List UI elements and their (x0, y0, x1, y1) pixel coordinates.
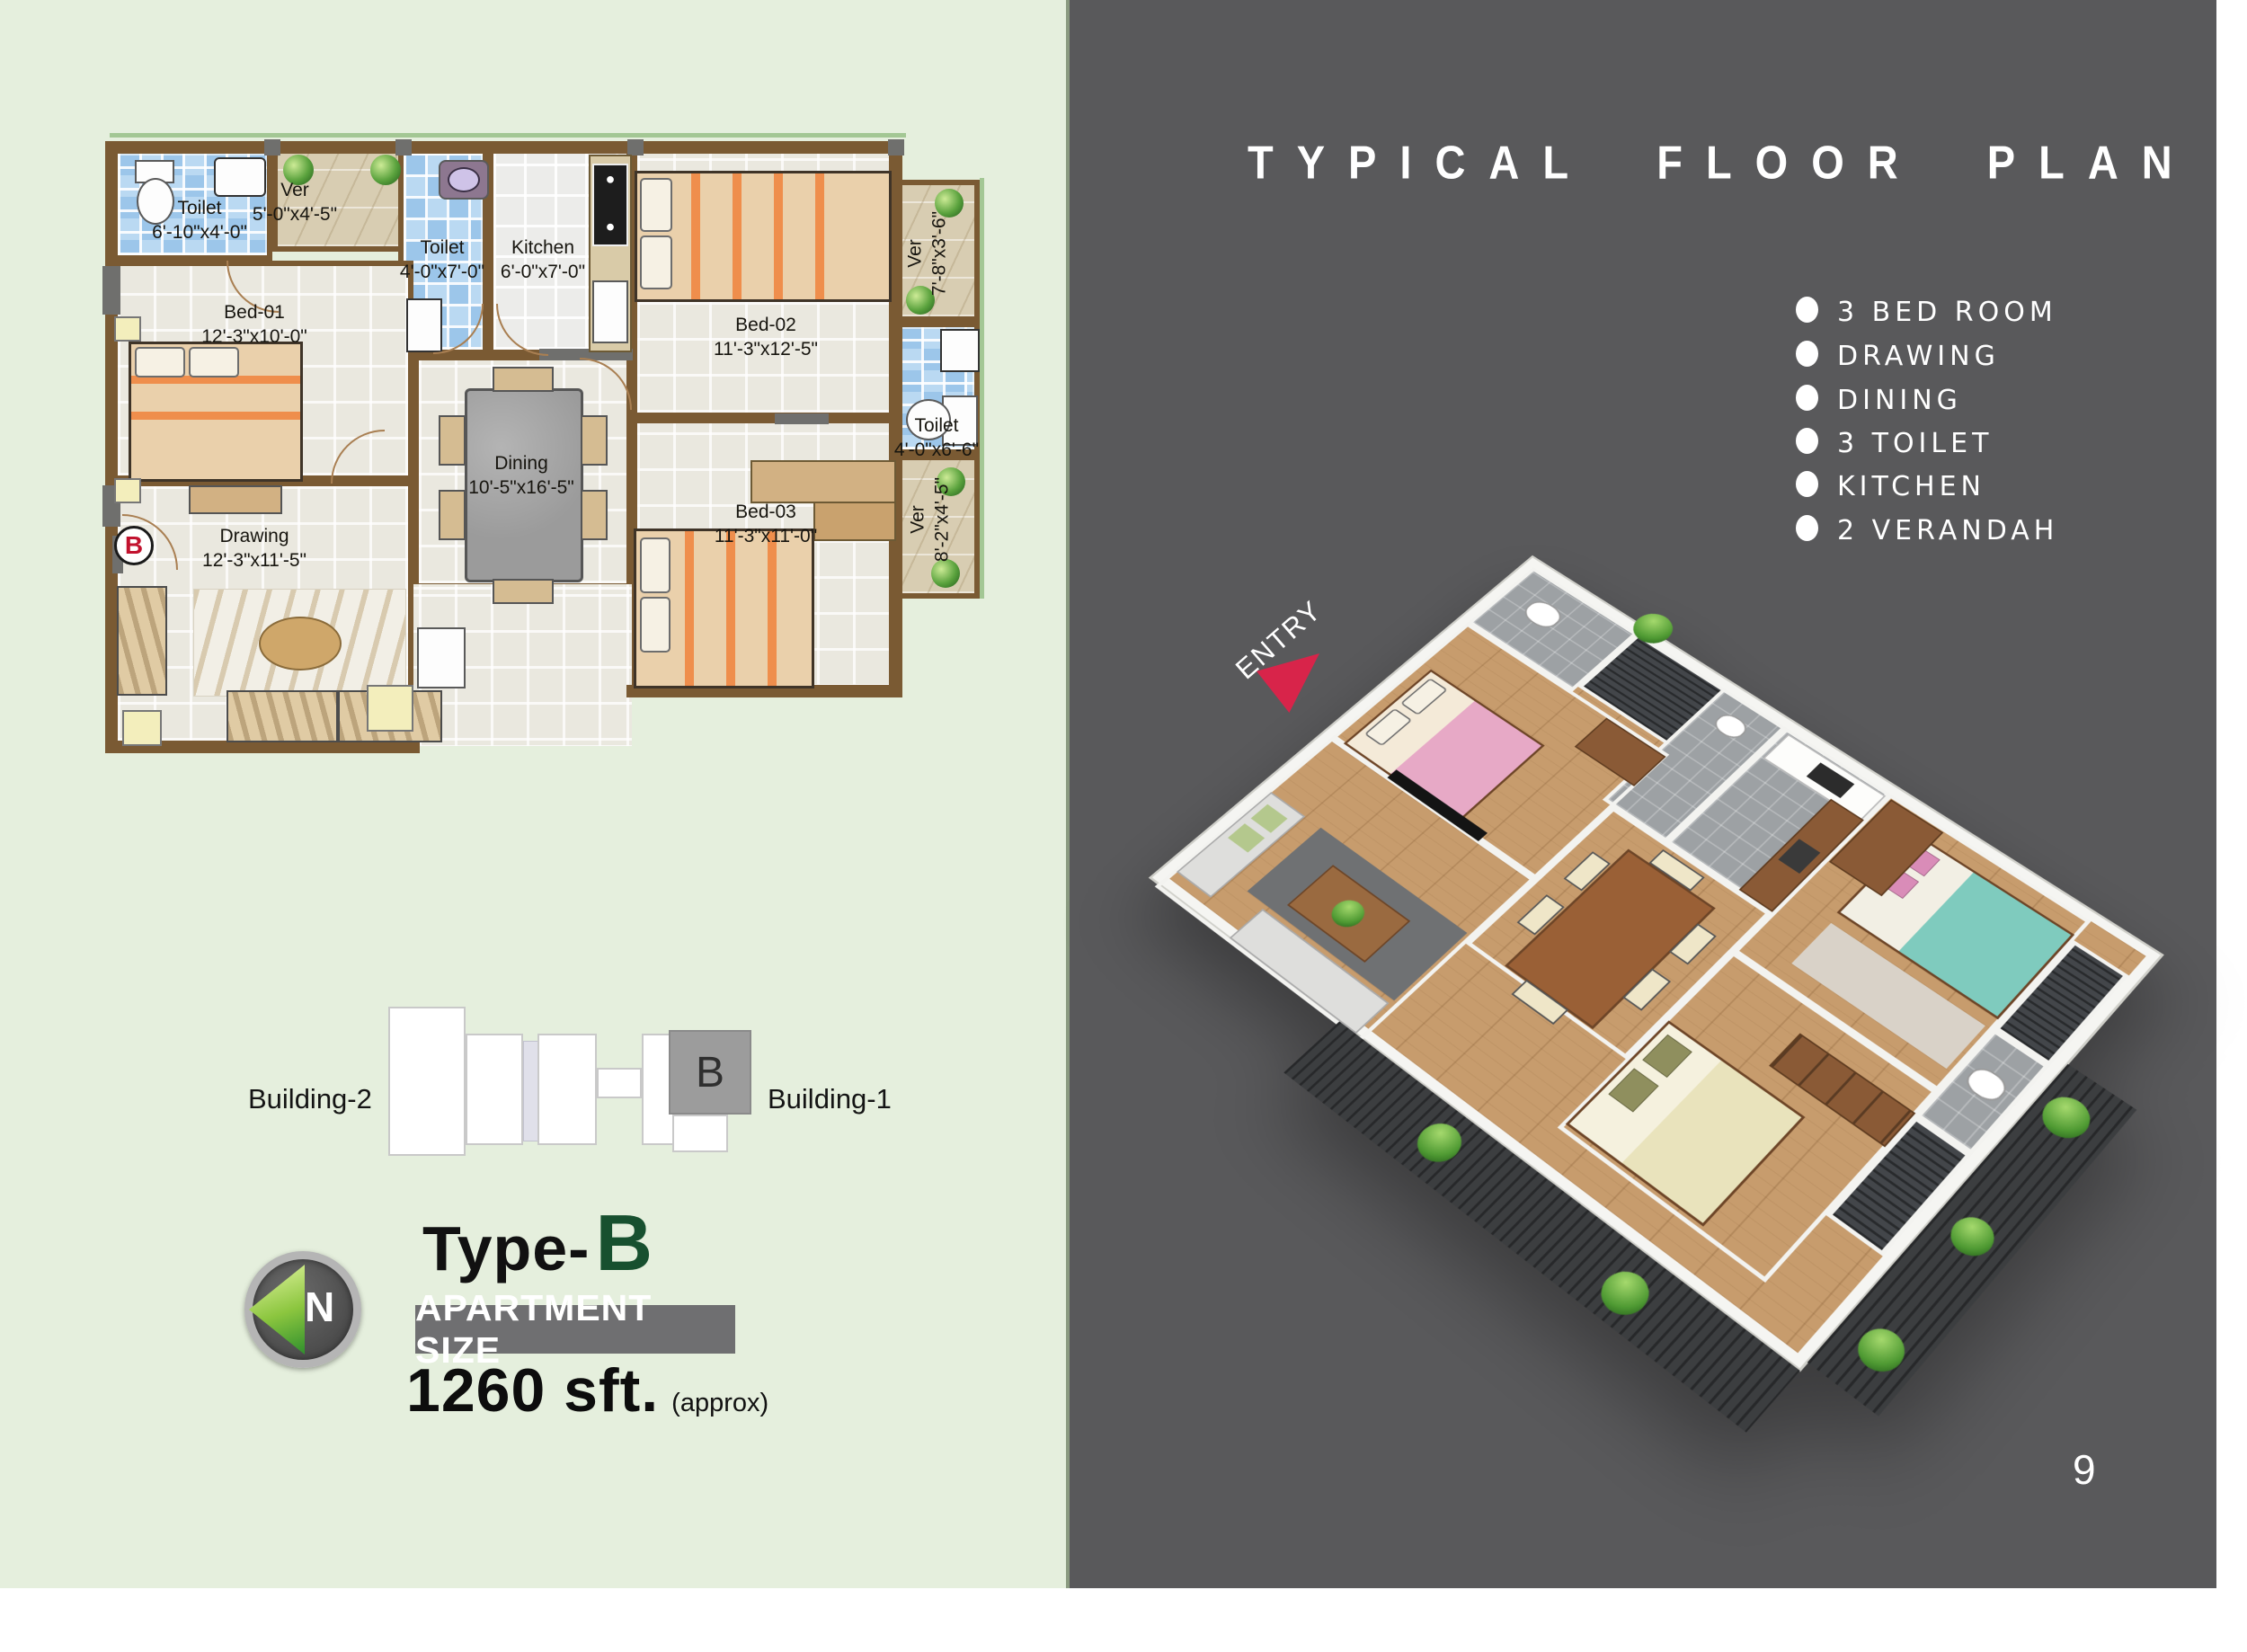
bullet-icon (1796, 385, 1818, 411)
apartment-size-banner: APARTMENT SIZE (415, 1305, 735, 1354)
wardrobe (750, 460, 896, 503)
wardrobe (813, 502, 896, 541)
label-verandah-3: Ver8'-2"x4'-5" (906, 477, 955, 562)
chair (439, 490, 466, 540)
building-2-label: Building-2 (248, 1083, 372, 1115)
label-toilet-3: Toilet4'-0"x6'-6" (894, 413, 979, 463)
sink (940, 329, 980, 372)
pillow (640, 537, 671, 593)
corner-table (122, 710, 162, 746)
wall-jamb (775, 413, 829, 424)
wall-left (105, 141, 118, 753)
kitchen-sink (592, 280, 628, 343)
tv-cabinet (189, 485, 282, 514)
pillow (189, 347, 239, 377)
stove (592, 164, 628, 246)
bullet-icon (1796, 428, 1818, 454)
pillow (135, 347, 185, 377)
pillow (640, 597, 671, 653)
wall-jamb (888, 139, 904, 155)
type-letter: B (596, 1197, 653, 1289)
sofa (226, 690, 338, 742)
page-title: TYPICAL FLOOR PLAN (1248, 135, 2196, 190)
label-kitchen: Kitchen6'-0"x7'-0" (501, 235, 585, 285)
north-arrow-icon (249, 1265, 305, 1354)
key-block (672, 1115, 728, 1152)
key-block (466, 1034, 523, 1145)
north-compass: N (244, 1251, 361, 1368)
size-approx: (approx) (671, 1389, 768, 1418)
corner-table (367, 685, 413, 732)
chair (493, 367, 554, 392)
bullet-icon (1796, 471, 1818, 497)
key-unit-b: B (669, 1030, 751, 1115)
wall-jamb (264, 139, 280, 155)
bullet-icon (1796, 297, 1818, 323)
bed-02-bed (635, 171, 892, 302)
bedside-table (114, 478, 141, 503)
label-drawing: Drawing12'-3"x11'-5" (202, 524, 306, 573)
balcony-trim-top (110, 133, 906, 138)
wall-top (105, 141, 903, 154)
sofa (117, 586, 167, 696)
key-unit-letter: B (696, 1048, 724, 1097)
type-title: Type- B (422, 1197, 653, 1289)
wall-jamb (102, 266, 120, 315)
label-verandah-2: Ver7'-8"x3'-6" (903, 211, 953, 296)
chair (439, 415, 466, 466)
squat-pan-bowl (448, 167, 480, 192)
page-number: 9 (2073, 1445, 2096, 1494)
plant (370, 155, 401, 185)
building-1-label: Building-1 (768, 1083, 892, 1115)
pillow (640, 178, 672, 232)
label-dining: Dining10'-5"x16'-5" (468, 451, 574, 501)
label-bed-02: Bed-0211'-3"x12'-5" (714, 313, 818, 362)
plant (931, 559, 960, 588)
bullet-icon (1796, 341, 1818, 367)
compass-n-letter: N (305, 1283, 334, 1331)
chair (581, 490, 608, 540)
balcony-trim-right (980, 178, 984, 599)
size-value: 1260 sft. (406, 1355, 659, 1426)
label-bed-01: Bed-0112'-3"x10'-0" (201, 300, 307, 350)
key-block (388, 1007, 466, 1156)
type-prefix: Type- (422, 1212, 591, 1284)
label-toilet-1: Toilet6'-10"x4'-0" (152, 196, 247, 245)
bullet-icon (1796, 515, 1818, 541)
label-bed-03: Bed-0311'-3"x11'-0" (715, 500, 817, 549)
wall-jamb (627, 139, 644, 155)
label-verandah-1: Ver5'-0"x4'-5" (253, 178, 337, 227)
label-toilet-2: Toilet4'-0"x7'-0" (400, 235, 484, 285)
apartment-size-value: 1260 sft. (approx) (406, 1355, 768, 1426)
unit-marker-letter: B (125, 531, 143, 560)
chair (581, 415, 608, 466)
coffee-table (259, 617, 342, 671)
wall-jamb (395, 139, 412, 155)
fridge (417, 627, 466, 688)
key-connector (597, 1068, 642, 1098)
left-brochure-panel: Toilet6'-10"x4'-0" Ver5'-0"x4'-5" Toilet… (0, 0, 1066, 1588)
bedside-table (114, 316, 141, 342)
pillow (640, 235, 672, 289)
chair (493, 579, 554, 604)
unit-marker-badge: B (114, 526, 154, 565)
key-block (537, 1034, 597, 1145)
